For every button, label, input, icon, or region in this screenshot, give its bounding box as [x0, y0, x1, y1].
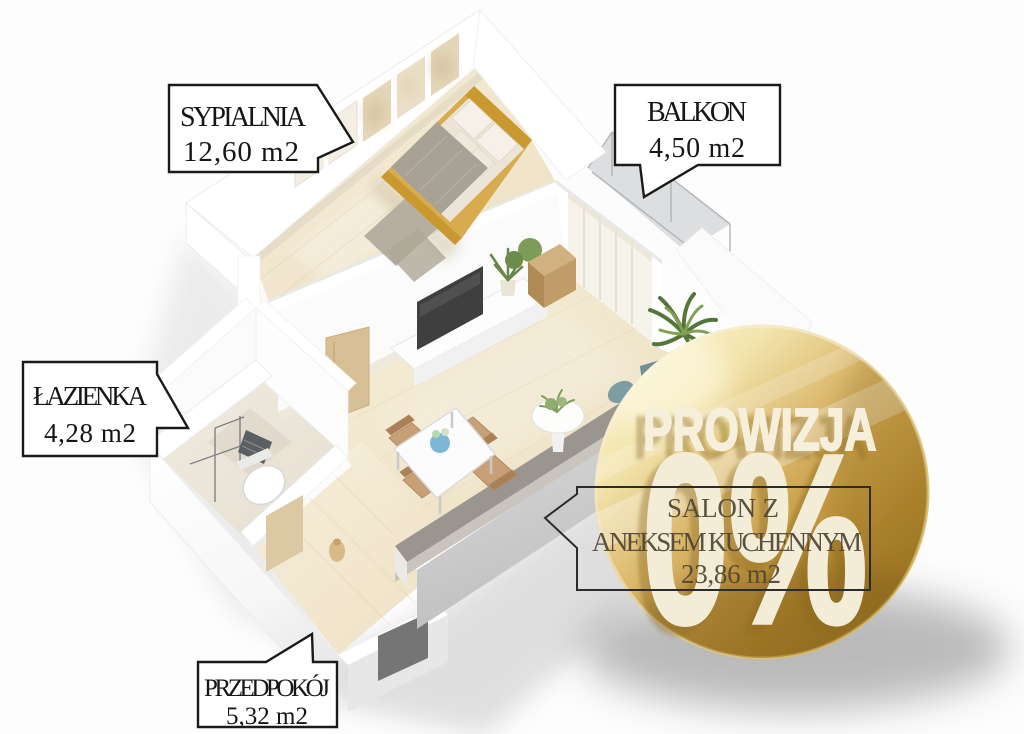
svg-text:5,32 m2: 5,32 m2 [226, 703, 308, 730]
svg-text:12,60 m2: 12,60 m2 [183, 136, 299, 168]
svg-text:4,28 m2: 4,28 m2 [44, 418, 136, 448]
svg-text:4,50 m2: 4,50 m2 [649, 133, 745, 164]
svg-text:ANEKSEM KUCHENNYM: ANEKSEM KUCHENNYM [592, 527, 862, 557]
svg-text:23,86 m2: 23,86 m2 [681, 559, 781, 589]
svg-text:SALON Z: SALON Z [667, 493, 779, 523]
svg-text:SYPIALNIA: SYPIALNIA [180, 102, 307, 133]
svg-text:PRZEDPOKÓJ: PRZEDPOKÓJ [204, 674, 330, 702]
svg-text:BALKON: BALKON [647, 97, 747, 128]
svg-text:ŁAZIENKA: ŁAZIENKA [33, 381, 148, 411]
